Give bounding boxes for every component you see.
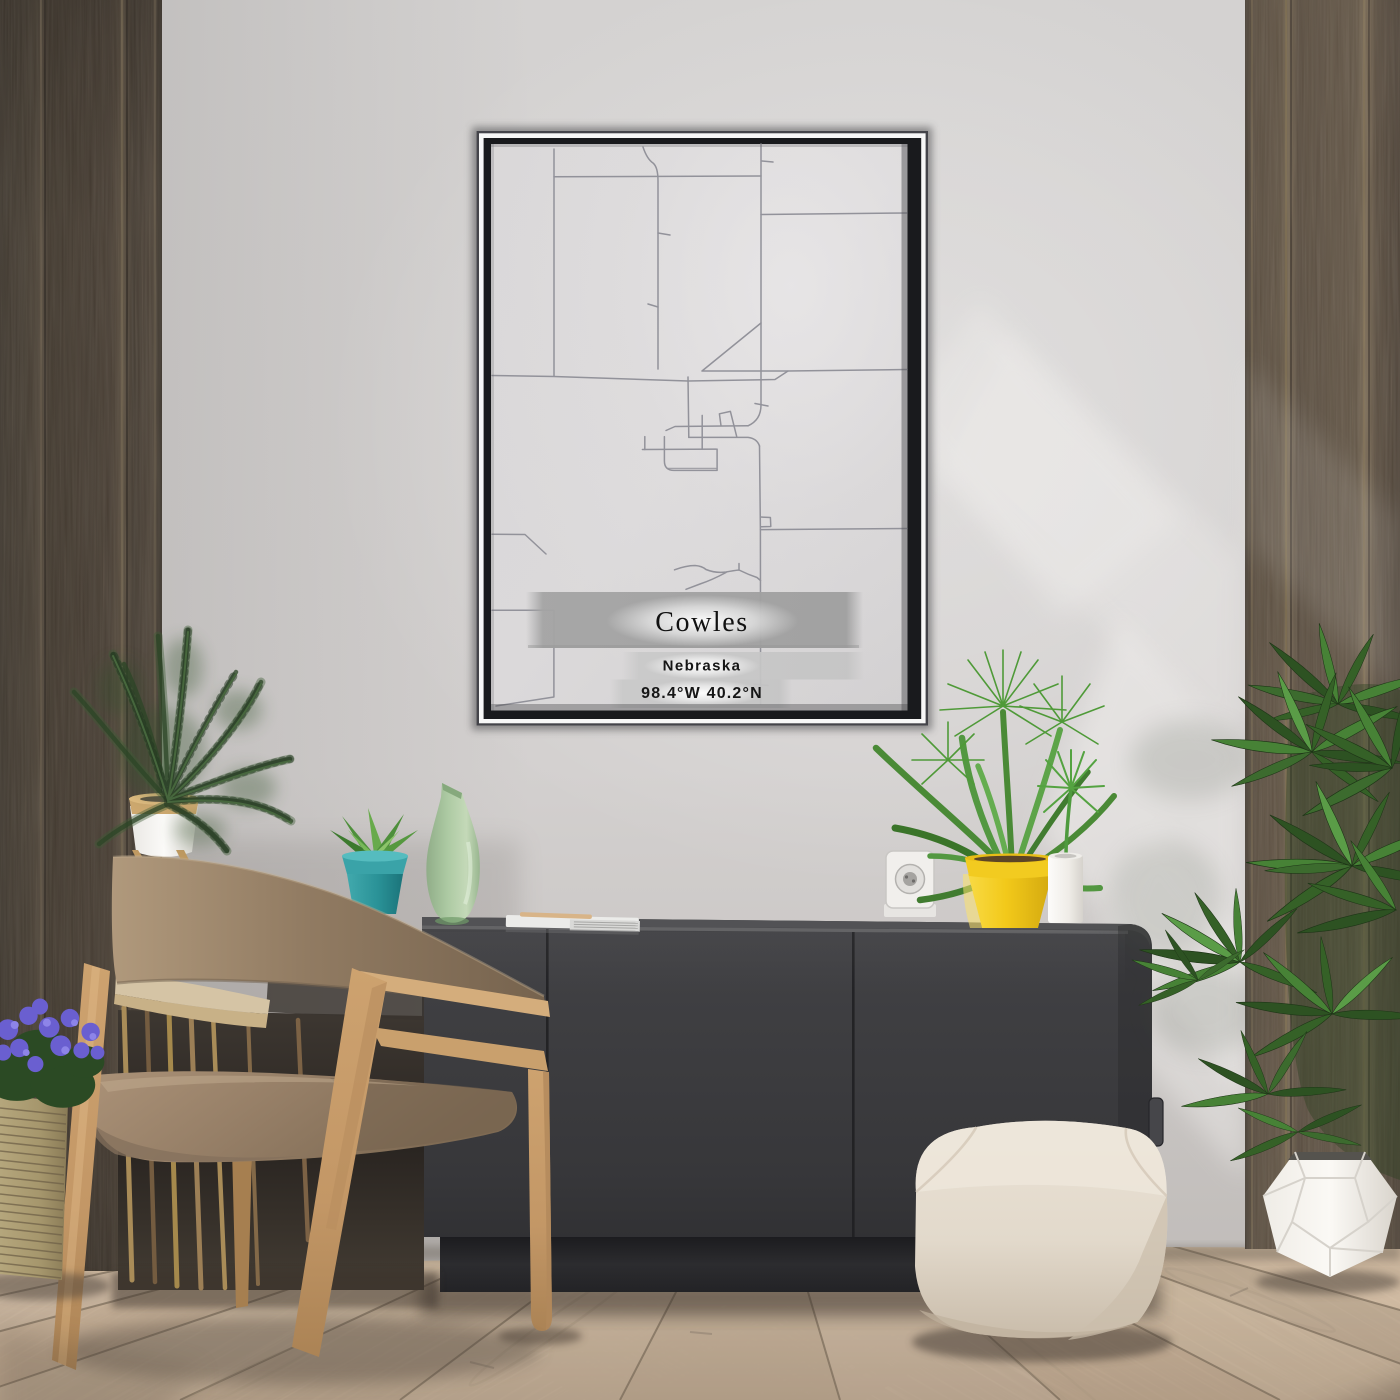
svg-text:Cowles: Cowles	[655, 607, 749, 638]
svg-text:Nebraska: Nebraska	[663, 658, 742, 675]
svg-text:98.4°W 40.2°N: 98.4°W 40.2°N	[641, 685, 763, 702]
